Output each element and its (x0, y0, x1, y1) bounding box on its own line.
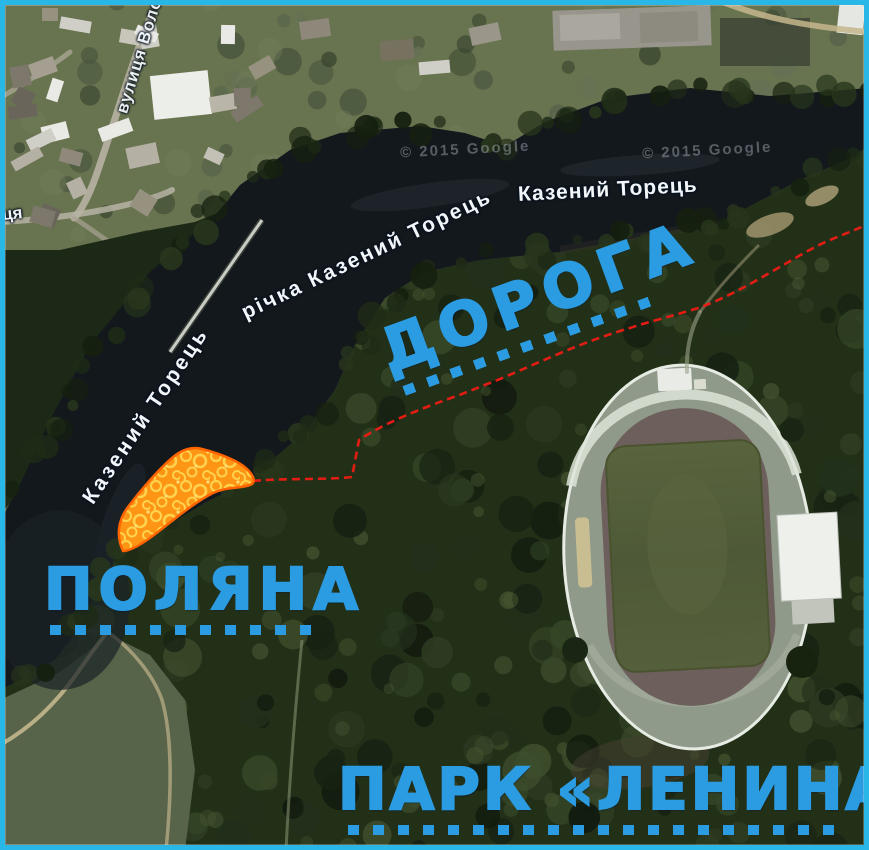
stadium-building (777, 512, 841, 601)
glade-annotation-text: ПОЛЯНА (44, 560, 364, 618)
street-name-fragment: ця (1, 203, 23, 225)
park-annotation-text: ПАРК «ЛЕНИНА» (338, 760, 869, 818)
glade-annotation: ПОЛЯНА (44, 560, 364, 635)
glade-annotation-dots (50, 625, 312, 635)
park-annotation: ПАРК «ЛЕНИНА» (338, 760, 869, 835)
park-annotation-dots (348, 825, 840, 835)
annotated-satellite-map: вулиця Воло ця річка Казений Торець Казе… (0, 0, 869, 850)
